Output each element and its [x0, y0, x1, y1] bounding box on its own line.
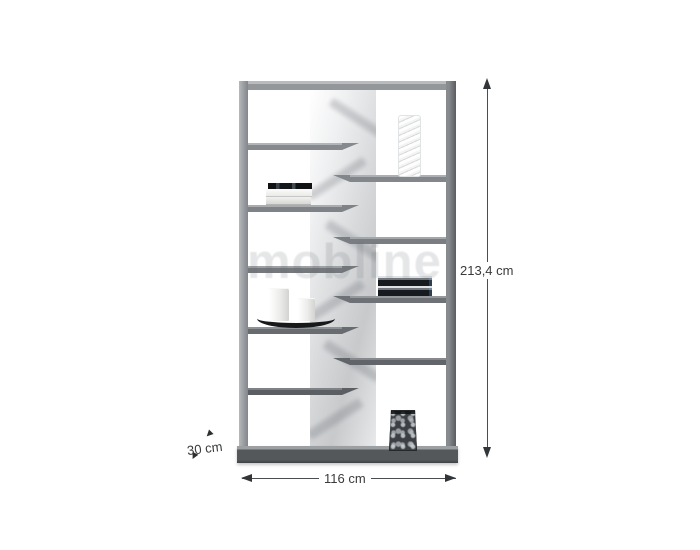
- bookcase-top-panel: [239, 81, 456, 90]
- shelf-left-2: [246, 205, 342, 212]
- arrow-up-icon: [483, 78, 491, 89]
- shelf-left-4: [246, 327, 342, 334]
- book: [266, 189, 312, 197]
- product-image: 213,4 cm 116 cm ▲ ▲ 30 cm mobline: [0, 0, 700, 550]
- book-stack-left: [266, 183, 312, 205]
- spiral-ornament: [398, 115, 421, 177]
- arrow-right-icon: [445, 474, 456, 482]
- shelf-right-4: [350, 358, 446, 365]
- bookcase-right-side: [446, 81, 456, 462]
- arrow-left-icon: [241, 474, 252, 482]
- depth-dimension-label: 30 cm: [186, 439, 223, 458]
- shelf-left-1: [246, 143, 342, 150]
- shelf-right-3: [350, 296, 446, 303]
- height-dimension-label: 213,4 cm: [458, 262, 515, 279]
- bookcase-base-panel: [237, 446, 458, 463]
- book: [266, 197, 311, 205]
- pillar-candle-short: [298, 298, 315, 321]
- decor-vase: [389, 410, 417, 451]
- shelf-left-5: [246, 388, 342, 395]
- book: [378, 276, 432, 286]
- book: [378, 286, 432, 296]
- bookcase-left-side: [239, 81, 248, 462]
- arrow-down-icon: [483, 447, 491, 458]
- shelf-left-3: [246, 266, 342, 273]
- shelf-right-2: [350, 237, 446, 244]
- book-stack-right: [378, 276, 432, 296]
- panel-reflection: [310, 398, 364, 440]
- pillar-candle-tall: [269, 288, 289, 321]
- panel-reflection: [329, 98, 376, 139]
- width-dimension-label: 116 cm: [319, 470, 371, 487]
